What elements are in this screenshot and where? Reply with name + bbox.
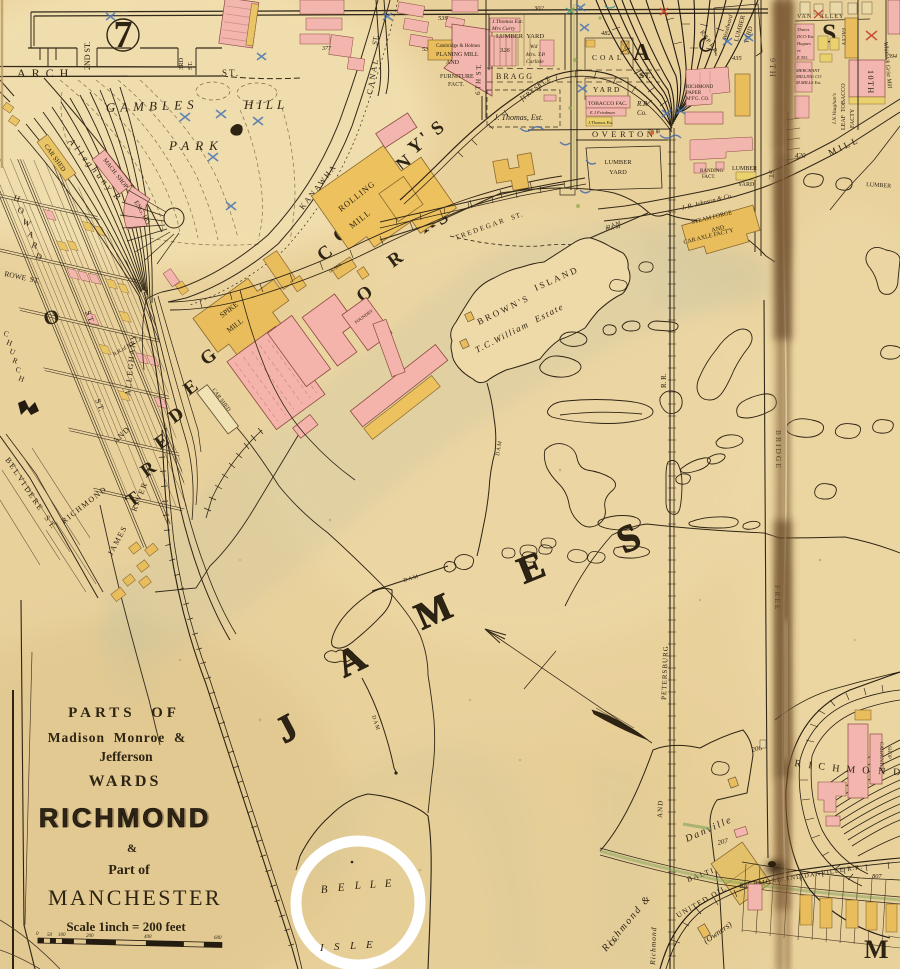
svg-text:YARD: YARD	[593, 85, 621, 94]
svg-text:10TH: 10TH	[866, 70, 875, 95]
svg-text:MANCHESTER: MANCHESTER	[48, 885, 222, 910]
svg-text:J. Thomas, Est.: J. Thomas, Est.	[494, 113, 543, 122]
svg-text:BRAGG: BRAGG	[496, 72, 534, 81]
svg-text:DCO Est.: DCO Est.	[796, 34, 815, 39]
svg-text:TOBACCO FAC.: TOBACCO FAC.	[588, 101, 628, 107]
svg-text:R.R.: R.R.	[636, 100, 649, 108]
svg-text:Thures: Thures	[797, 27, 810, 32]
svg-text:RICHMOND: RICHMOND	[39, 803, 212, 833]
svg-text:Cambridge & Holmes: Cambridge & Holmes	[436, 44, 480, 49]
svg-text:E: E	[336, 882, 345, 895]
svg-text:E NO.: E NO.	[796, 55, 808, 60]
svg-text:SHOP: SHOP	[886, 746, 891, 759]
svg-text:7: 7	[114, 14, 133, 56]
svg-text:YARD: YARD	[738, 182, 755, 188]
svg-text:M: M	[864, 935, 889, 964]
svg-text:FACT.: FACT.	[448, 82, 464, 88]
svg-text:Co.: Co.	[637, 109, 647, 117]
svg-text:200: 200	[86, 934, 94, 939]
svg-text:&: &	[127, 841, 137, 855]
svg-text:L: L	[368, 879, 376, 891]
svg-text:400: 400	[144, 935, 152, 940]
svg-text:BANDING: BANDING	[700, 169, 723, 174]
svg-text:M.MILLS Est.: M.MILLS Est.	[795, 80, 821, 85]
svg-text:377: 377	[321, 46, 332, 52]
svg-text:RICHMOND: RICHMOND	[686, 85, 714, 90]
svg-text:M'F'G. CO.: M'F'G. CO.	[686, 97, 709, 102]
svg-text:S: S	[334, 941, 340, 953]
svg-text:Mrs. T.P.: Mrs. T.P.	[525, 52, 546, 58]
svg-text:2ND ST.: 2ND ST.	[83, 42, 92, 70]
svg-text:FACTY: FACTY	[850, 108, 856, 128]
svg-text:er.: er.	[797, 48, 801, 53]
svg-text:LUMBER: LUMBER	[604, 159, 632, 166]
svg-text:PARTS OF: PARTS OF	[68, 705, 180, 721]
svg-text:807: 807	[872, 873, 883, 880]
svg-text:L: L	[349, 940, 356, 952]
svg-text:HILL: HILL	[243, 97, 288, 112]
svg-text:Scale 1inch = 200 feet: Scale 1inch = 200 feet	[66, 919, 186, 934]
svg-text:VAN ALLEY: VAN ALLEY	[797, 14, 844, 20]
svg-text:H: H	[832, 763, 840, 775]
svg-text:Richmond: Richmond	[648, 926, 658, 966]
svg-text:Mrs Curry: Mrs Curry	[491, 26, 516, 32]
svg-text:PARK: PARK	[168, 138, 224, 153]
svg-text:MILLING CO: MILLING CO	[795, 74, 822, 79]
svg-text:N: N	[878, 766, 886, 777]
svg-text:O: O	[862, 765, 870, 776]
svg-text:MERCHANT: MERCHANT	[795, 68, 820, 73]
svg-text:L: L	[353, 880, 361, 892]
svg-text:YARD: YARD	[609, 169, 627, 176]
svg-text:302: 302	[533, 5, 545, 12]
svg-text:Carlisle: Carlisle	[526, 59, 544, 65]
svg-text:B: B	[320, 884, 328, 896]
svg-text:435: 435	[732, 55, 743, 62]
svg-text:E.J.Friedman: E.J.Friedman	[589, 110, 615, 115]
svg-text:Wd: Wd	[530, 44, 538, 50]
svg-text:Madison Monroe &: Madison Monroe &	[48, 730, 187, 745]
svg-text:3RD: 3RD	[178, 57, 185, 70]
svg-text:Part of: Part of	[108, 863, 150, 878]
svg-text:FACTY: FACTY	[840, 28, 846, 46]
svg-text:E: E	[383, 878, 392, 891]
svg-text:AND: AND	[446, 60, 460, 66]
svg-text:100: 100	[58, 933, 66, 938]
svg-text:AND: AND	[656, 800, 665, 818]
svg-text:LUMBER: LUMBER	[732, 166, 757, 172]
svg-text:D: D	[893, 767, 900, 778]
svg-text:LEAF TOBACCO: LEAF TOBACCO	[841, 83, 847, 130]
svg-text:COAL: COAL	[592, 53, 624, 62]
svg-text:FURNITURE: FURNITURE	[440, 74, 474, 80]
svg-text:J.Thomas Est.: J.Thomas Est.	[492, 19, 523, 25]
svg-text:LUMBER YARD: LUMBER YARD	[496, 33, 544, 40]
svg-text:ARCH: ARCH	[17, 66, 74, 80]
svg-text:6 T H S T.: 6 T H S T.	[474, 64, 483, 95]
svg-text:ST.: ST.	[371, 35, 380, 45]
svg-text:ST.: ST.	[187, 61, 194, 70]
svg-text:I.N.Vaughan's: I.N.Vaughan's	[832, 93, 838, 125]
svg-text:FACT.: FACT.	[702, 175, 715, 180]
svg-text:394: 394	[887, 53, 897, 60]
svg-text:PAPER: PAPER	[686, 91, 702, 96]
svg-text:Hugnes: Hugnes	[796, 41, 811, 46]
svg-text:600: 600	[214, 936, 222, 941]
svg-text:420: 420	[795, 152, 806, 160]
svg-text:OVERTON: OVERTON	[592, 129, 656, 139]
svg-text:R. R.: R. R.	[660, 373, 668, 388]
svg-text:539: 539	[438, 15, 449, 22]
svg-text:ST.: ST.	[222, 68, 240, 78]
svg-text:Jefferson: Jefferson	[99, 749, 153, 764]
svg-text:WARDS: WARDS	[89, 773, 162, 790]
svg-text:326: 326	[499, 47, 511, 54]
svg-text:50: 50	[47, 933, 53, 938]
svg-text:E: E	[365, 939, 373, 951]
svg-text:J.Thomas Est.: J.Thomas Est.	[588, 120, 613, 125]
svg-text:M: M	[846, 764, 856, 776]
svg-text:PLANING MILL: PLANING MILL	[436, 52, 479, 58]
